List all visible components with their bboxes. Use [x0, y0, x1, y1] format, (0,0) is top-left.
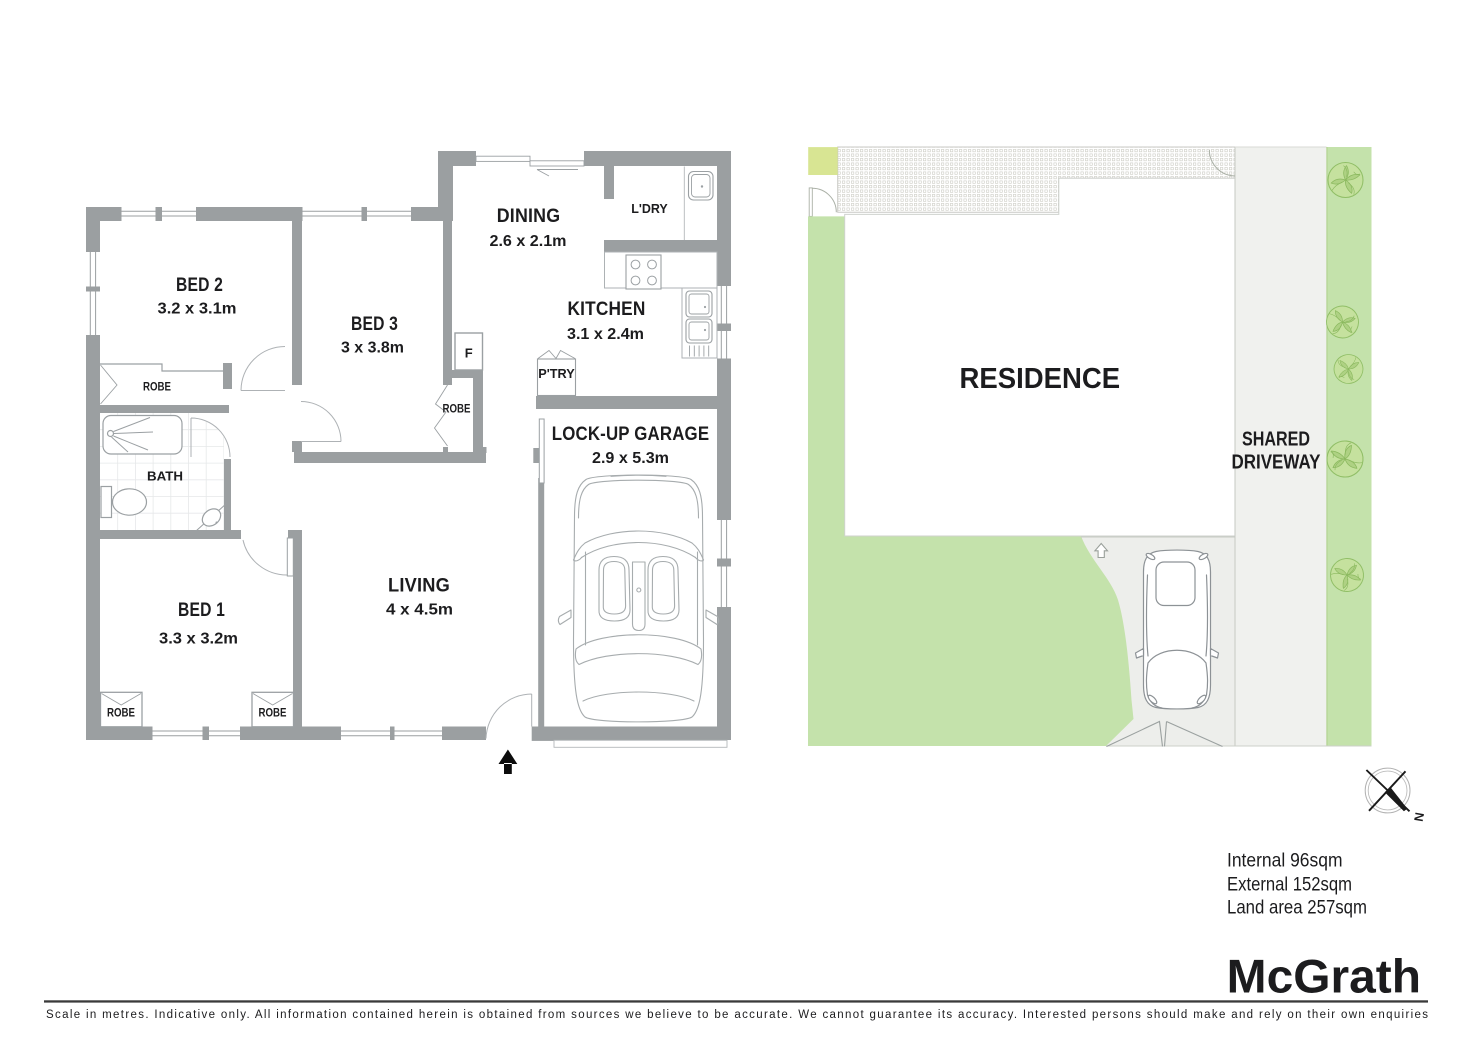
- svg-text:3 x 3.8m: 3 x 3.8m: [341, 340, 404, 357]
- svg-text:ROBE: ROBE: [107, 708, 135, 720]
- svg-text:ROBE: ROBE: [143, 382, 171, 394]
- svg-text:KITCHEN: KITCHEN: [568, 299, 646, 320]
- svg-text:BED 2: BED 2: [176, 275, 223, 296]
- svg-text:DINING: DINING: [497, 206, 561, 227]
- svg-text:Land area 257sqm: Land area 257sqm: [1227, 897, 1367, 919]
- svg-text:3.1 x 2.4m: 3.1 x 2.4m: [567, 326, 644, 343]
- svg-text:SHARED: SHARED: [1242, 429, 1310, 451]
- svg-text:BATH: BATH: [147, 469, 183, 484]
- svg-text:3.2 x 3.1m: 3.2 x 3.1m: [158, 301, 237, 318]
- svg-text:McGrath: McGrath: [1227, 950, 1421, 1003]
- svg-text:DRIVEWAY: DRIVEWAY: [1232, 452, 1322, 474]
- svg-text:2.9 x 5.3m: 2.9 x 5.3m: [592, 450, 669, 467]
- svg-text:ROBE: ROBE: [259, 708, 287, 720]
- svg-text:LOCK-UP GARAGE: LOCK-UP GARAGE: [552, 424, 710, 445]
- svg-text:BED 1: BED 1: [178, 600, 225, 621]
- svg-text:3.3 x 3.2m: 3.3 x 3.2m: [159, 631, 238, 648]
- svg-text:ROBE: ROBE: [443, 404, 471, 416]
- svg-text:4 x 4.5m: 4 x 4.5m: [386, 602, 453, 619]
- svg-text:LIVING: LIVING: [388, 576, 450, 597]
- svg-text:RESIDENCE: RESIDENCE: [960, 363, 1121, 395]
- svg-text:BED 3: BED 3: [351, 314, 398, 335]
- svg-text:L'DRY: L'DRY: [631, 201, 668, 216]
- svg-text:Scale in metres. Indicative on: Scale in metres. Indicative only. All in…: [46, 1009, 1428, 1021]
- svg-text:External 152sqm: External 152sqm: [1227, 874, 1352, 896]
- svg-text:F: F: [465, 346, 473, 361]
- svg-text:Internal 96sqm: Internal 96sqm: [1227, 849, 1343, 871]
- svg-text:2.6 x 2.1m: 2.6 x 2.1m: [490, 233, 567, 250]
- svg-text:P'TRY: P'TRY: [538, 366, 575, 381]
